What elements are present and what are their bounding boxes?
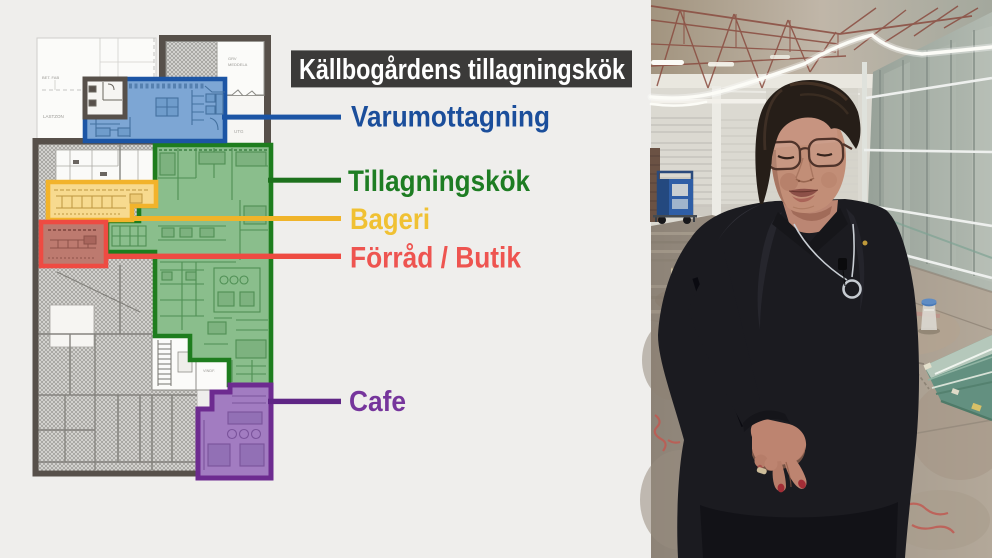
- svg-text:MEDDELA: MEDDELA: [228, 62, 248, 67]
- svg-text:Bageri: Bageri: [350, 203, 430, 236]
- svg-text:GRV: GRV: [228, 56, 237, 61]
- svg-text:Varumottagning: Varumottagning: [351, 101, 550, 134]
- svg-text:LASTZON: LASTZON: [43, 114, 64, 119]
- svg-text:BET. FAB: BET. FAB: [42, 75, 59, 80]
- svg-text:Tillagningskök: Tillagningskök: [348, 165, 530, 198]
- svg-text:Förråd / Butik: Förråd / Butik: [350, 241, 521, 274]
- svg-text:Cafe: Cafe: [349, 386, 406, 418]
- svg-text:VINDF.: VINDF.: [203, 369, 215, 373]
- svg-text:Källbogårdens tillagningskök: Källbogårdens tillagningskök: [299, 54, 626, 86]
- svg-text:UTG: UTG: [234, 129, 244, 134]
